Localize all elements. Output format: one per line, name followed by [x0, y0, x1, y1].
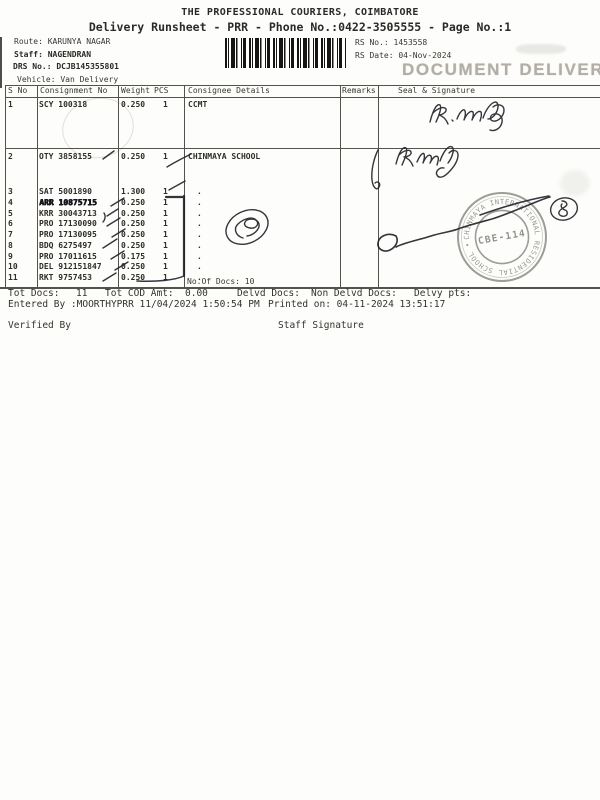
tick-row3-pcs — [169, 181, 185, 190]
row-weight: 0.250 — [121, 241, 145, 250]
row-pcs: 1 — [163, 100, 168, 109]
document-delivery-stamp: DOCUMENT DELIVERY — [402, 61, 600, 80]
row-weight: 0.175 — [121, 252, 145, 261]
row-consignment: DEL 912151847 — [39, 262, 102, 271]
row-pcs: 1 — [163, 273, 168, 282]
row-weight: 0.250 — [121, 198, 145, 207]
row-weight: 0.250 — [121, 209, 145, 218]
printed-on-text: Printed on: 04-11-2024 13:51:17 — [268, 300, 445, 310]
verified-by-label: Verified By — [8, 321, 71, 331]
row-weight: 0.250 — [121, 262, 145, 271]
col-weight: Weight — [121, 87, 150, 96]
row-weight: 0.250 — [121, 152, 145, 161]
tot-cod-label: Tot COD Amt: — [105, 289, 174, 299]
col-seal: Seal & Signature — [398, 87, 475, 96]
round-stamp-rim-text: CHINMAYA INTERNATIONAL RESIDENTIAL SCHOO… — [457, 192, 548, 283]
row-consignment: PRO 17130090 — [39, 219, 97, 228]
col-consignment: Consignment No — [40, 87, 107, 96]
col-pcs: PCS — [154, 87, 168, 96]
row-sno: 4 — [8, 198, 13, 207]
rs-no-text: RS No.: 1453558 — [355, 39, 427, 48]
tot-docs-label: Tot Docs: — [8, 289, 59, 299]
route-text: Route: KARUNYA NAGAR — [14, 38, 110, 47]
no-of-docs-text: No.Of Docs: 10 — [187, 278, 254, 287]
row-consignment: OTY 3858155 — [39, 152, 92, 161]
col-consignee: Consignee Details — [188, 87, 270, 96]
row-pcs: 1 — [163, 209, 168, 218]
row-sno: 1 — [8, 100, 13, 109]
row-consignee: . — [197, 230, 202, 239]
non-delvd-docs-label: Non Delvd Docs: — [311, 289, 397, 299]
row-consignee: CCMT — [188, 100, 207, 109]
row-consignee: . — [197, 262, 202, 271]
tot-cod-value: 0.00 — [185, 289, 208, 299]
row-weight: 0.250 — [121, 219, 145, 228]
document-subtitle: Delivery Runsheet - PRR - Phone No.:0422… — [0, 21, 600, 34]
row-weight: 0.250 — [121, 230, 145, 239]
staff-signature-label: Staff Signature — [278, 321, 364, 331]
tot-docs-value: 11 — [76, 289, 87, 299]
scanned-delivery-runsheet: THE PROFESSIONAL COURIERS, COIMBATORE De… — [0, 0, 600, 800]
row-consignment: PRO 17130095 — [39, 230, 97, 239]
row-weight: 0.250 — [121, 100, 145, 109]
runsheet-barcode — [225, 38, 346, 68]
round-stamp-center-text: CBE-114 — [477, 228, 527, 247]
row-sno: 10 — [8, 262, 18, 271]
row-weight: 0.250 — [121, 273, 145, 282]
row-consignment: KRR 30043713 — [39, 209, 97, 218]
row-pcs: 1 — [163, 198, 168, 207]
row-sno: 9 — [8, 252, 13, 261]
row-consignee: . — [197, 198, 202, 207]
signature-row1 — [430, 102, 504, 131]
row-consignee: . — [197, 209, 202, 218]
staff-text: Staff: NAGENDRAN — [14, 51, 91, 60]
scan-edge-artifact — [0, 37, 2, 88]
document-title: THE PROFESSIONAL COURIERS, COIMBATORE — [0, 7, 600, 18]
row-consignment: BDQ 6275497 — [39, 241, 92, 250]
row-consignee: . — [197, 219, 202, 228]
col-remarks: Remarks — [342, 87, 376, 96]
round-stamp: CHINMAYA INTERNATIONAL RESIDENTIAL SCHOO… — [451, 186, 553, 288]
rs-date-text: RS Date: 04-Nov-2024 — [355, 52, 451, 61]
row-pcs: 1 — [163, 230, 168, 239]
row-pcs: 1 — [163, 252, 168, 261]
entered-by-text: Entered By :MOORTHYPRR 11/04/2024 1:50:5… — [8, 300, 260, 310]
delvy-pts-label: Delvy pts: — [414, 289, 471, 299]
signature-row2 — [396, 147, 458, 178]
row-sno: 7 — [8, 230, 13, 239]
row-sno: 8 — [8, 241, 13, 250]
circled-8-consignee — [220, 203, 274, 251]
svg-text:CHINMAYA INTERNATIONAL RESIDEN: CHINMAYA INTERNATIONAL RESIDENTIAL SCHOO… — [457, 192, 548, 283]
row-consignment: SAT 5001890 — [39, 187, 92, 196]
recipient-signature-scrawl — [378, 196, 550, 251]
row-sno: 6 — [8, 219, 13, 228]
vehicle-text: Vehicle: Van Delivery — [17, 76, 118, 85]
row-pcs: 1 — [163, 187, 168, 196]
row-sno: 11 — [8, 273, 18, 282]
row-weight: 1.300 — [121, 187, 145, 196]
col-sno: S No — [8, 87, 27, 96]
row-consignee: . — [197, 187, 202, 196]
row-pcs: 1 — [163, 219, 168, 228]
circled-8-seal — [548, 195, 580, 223]
row-sno: 2 — [8, 152, 13, 161]
row-consignment: SCY 100318 — [39, 100, 87, 109]
delvd-docs-label: Delvd Docs: — [237, 289, 300, 299]
row-sno: 5 — [8, 209, 13, 218]
row-sno: 3 — [8, 187, 13, 196]
row-consignee: CHINMAYA SCHOOL — [188, 152, 260, 161]
row-pcs: 1 — [163, 152, 168, 161]
row-pcs: 1 — [163, 262, 168, 271]
row-consignment: RKT 9757453 — [39, 273, 92, 282]
scan-smudge — [560, 170, 590, 196]
row-consignment-overwritten: ARR 10875715 — [39, 198, 97, 207]
drs-no-text: DRS No.: DCJB145355801 — [13, 63, 119, 72]
scan-smudge — [516, 44, 566, 54]
row-consignment: PRO 17011615 — [39, 252, 97, 261]
row-consignee: . — [197, 252, 202, 261]
row-pcs: 1 — [163, 241, 168, 250]
row-consignee: . — [197, 241, 202, 250]
